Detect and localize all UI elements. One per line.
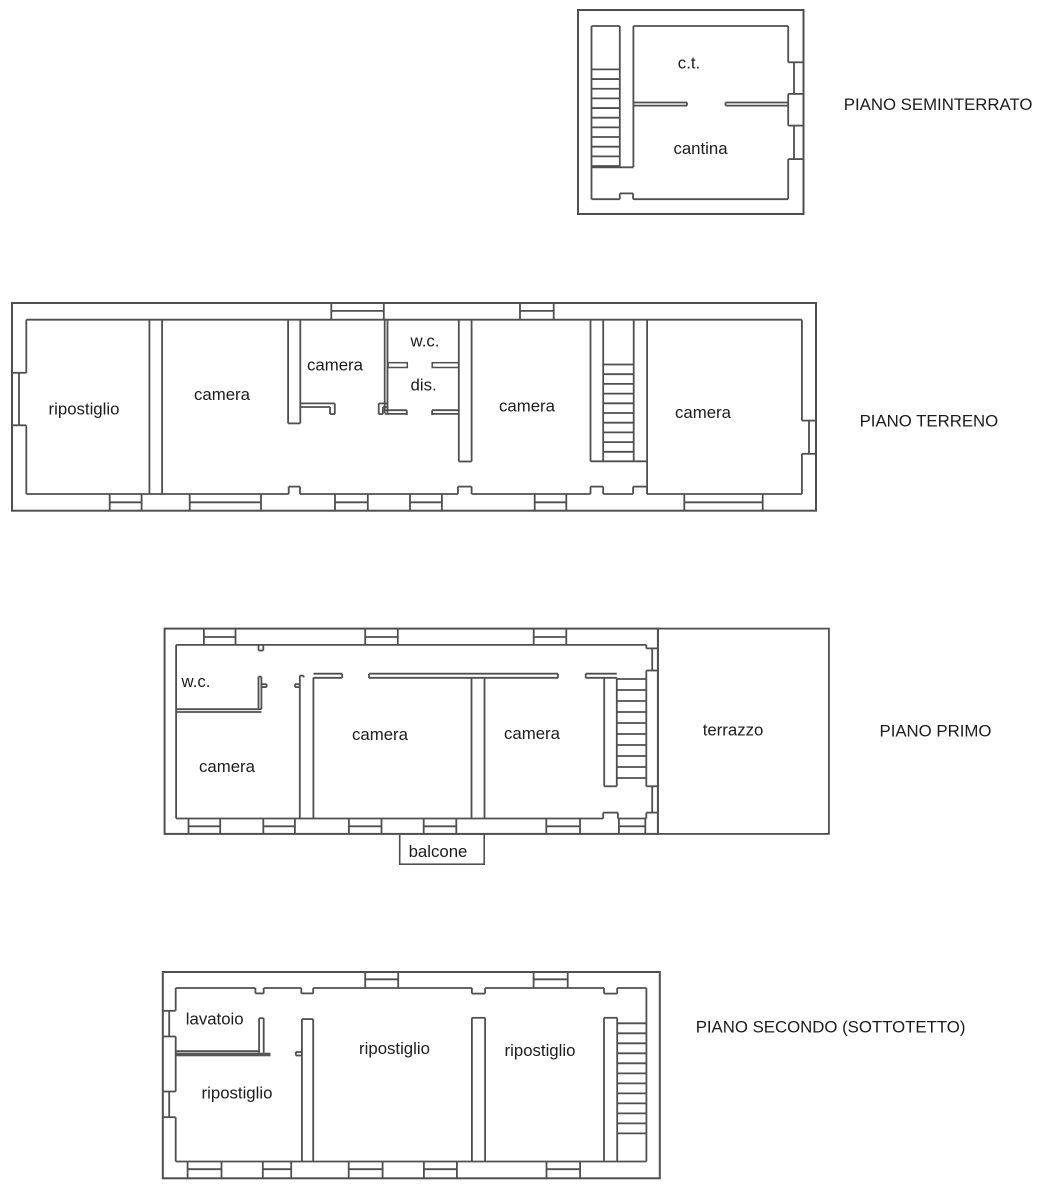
svg-text:camera: camera xyxy=(199,757,256,776)
svg-text:PIANO SEMINTERRATO: PIANO SEMINTERRATO xyxy=(844,95,1033,114)
svg-text:terrazzo: terrazzo xyxy=(703,721,764,740)
svg-text:w.c.: w.c. xyxy=(410,332,440,351)
svg-text:camera: camera xyxy=(307,356,364,375)
svg-text:c.t.: c.t. xyxy=(678,54,700,73)
svg-text:ripostiglio: ripostiglio xyxy=(49,400,120,419)
svg-text:ripostiglio: ripostiglio xyxy=(359,1039,430,1058)
svg-text:PIANO PRIMO: PIANO PRIMO xyxy=(880,722,992,741)
svg-text:camera: camera xyxy=(352,725,409,744)
svg-text:camera: camera xyxy=(675,403,732,422)
svg-text:dis.: dis. xyxy=(411,376,437,395)
svg-text:camera: camera xyxy=(499,397,556,416)
svg-text:ripostiglio: ripostiglio xyxy=(505,1041,576,1060)
svg-text:balcone: balcone xyxy=(409,842,468,861)
svg-text:PIANO TERRENO: PIANO TERRENO xyxy=(860,412,999,431)
svg-text:w.c.: w.c. xyxy=(181,672,211,691)
svg-text:lavatoio: lavatoio xyxy=(186,1010,244,1029)
svg-text:cantina: cantina xyxy=(673,139,728,158)
svg-text:camera: camera xyxy=(194,385,251,404)
svg-text:PIANO SECONDO (SOTTOTETTO): PIANO SECONDO (SOTTOTETTO) xyxy=(696,1018,966,1037)
svg-text:ripostiglio: ripostiglio xyxy=(202,1084,273,1103)
svg-text:camera: camera xyxy=(504,724,561,743)
